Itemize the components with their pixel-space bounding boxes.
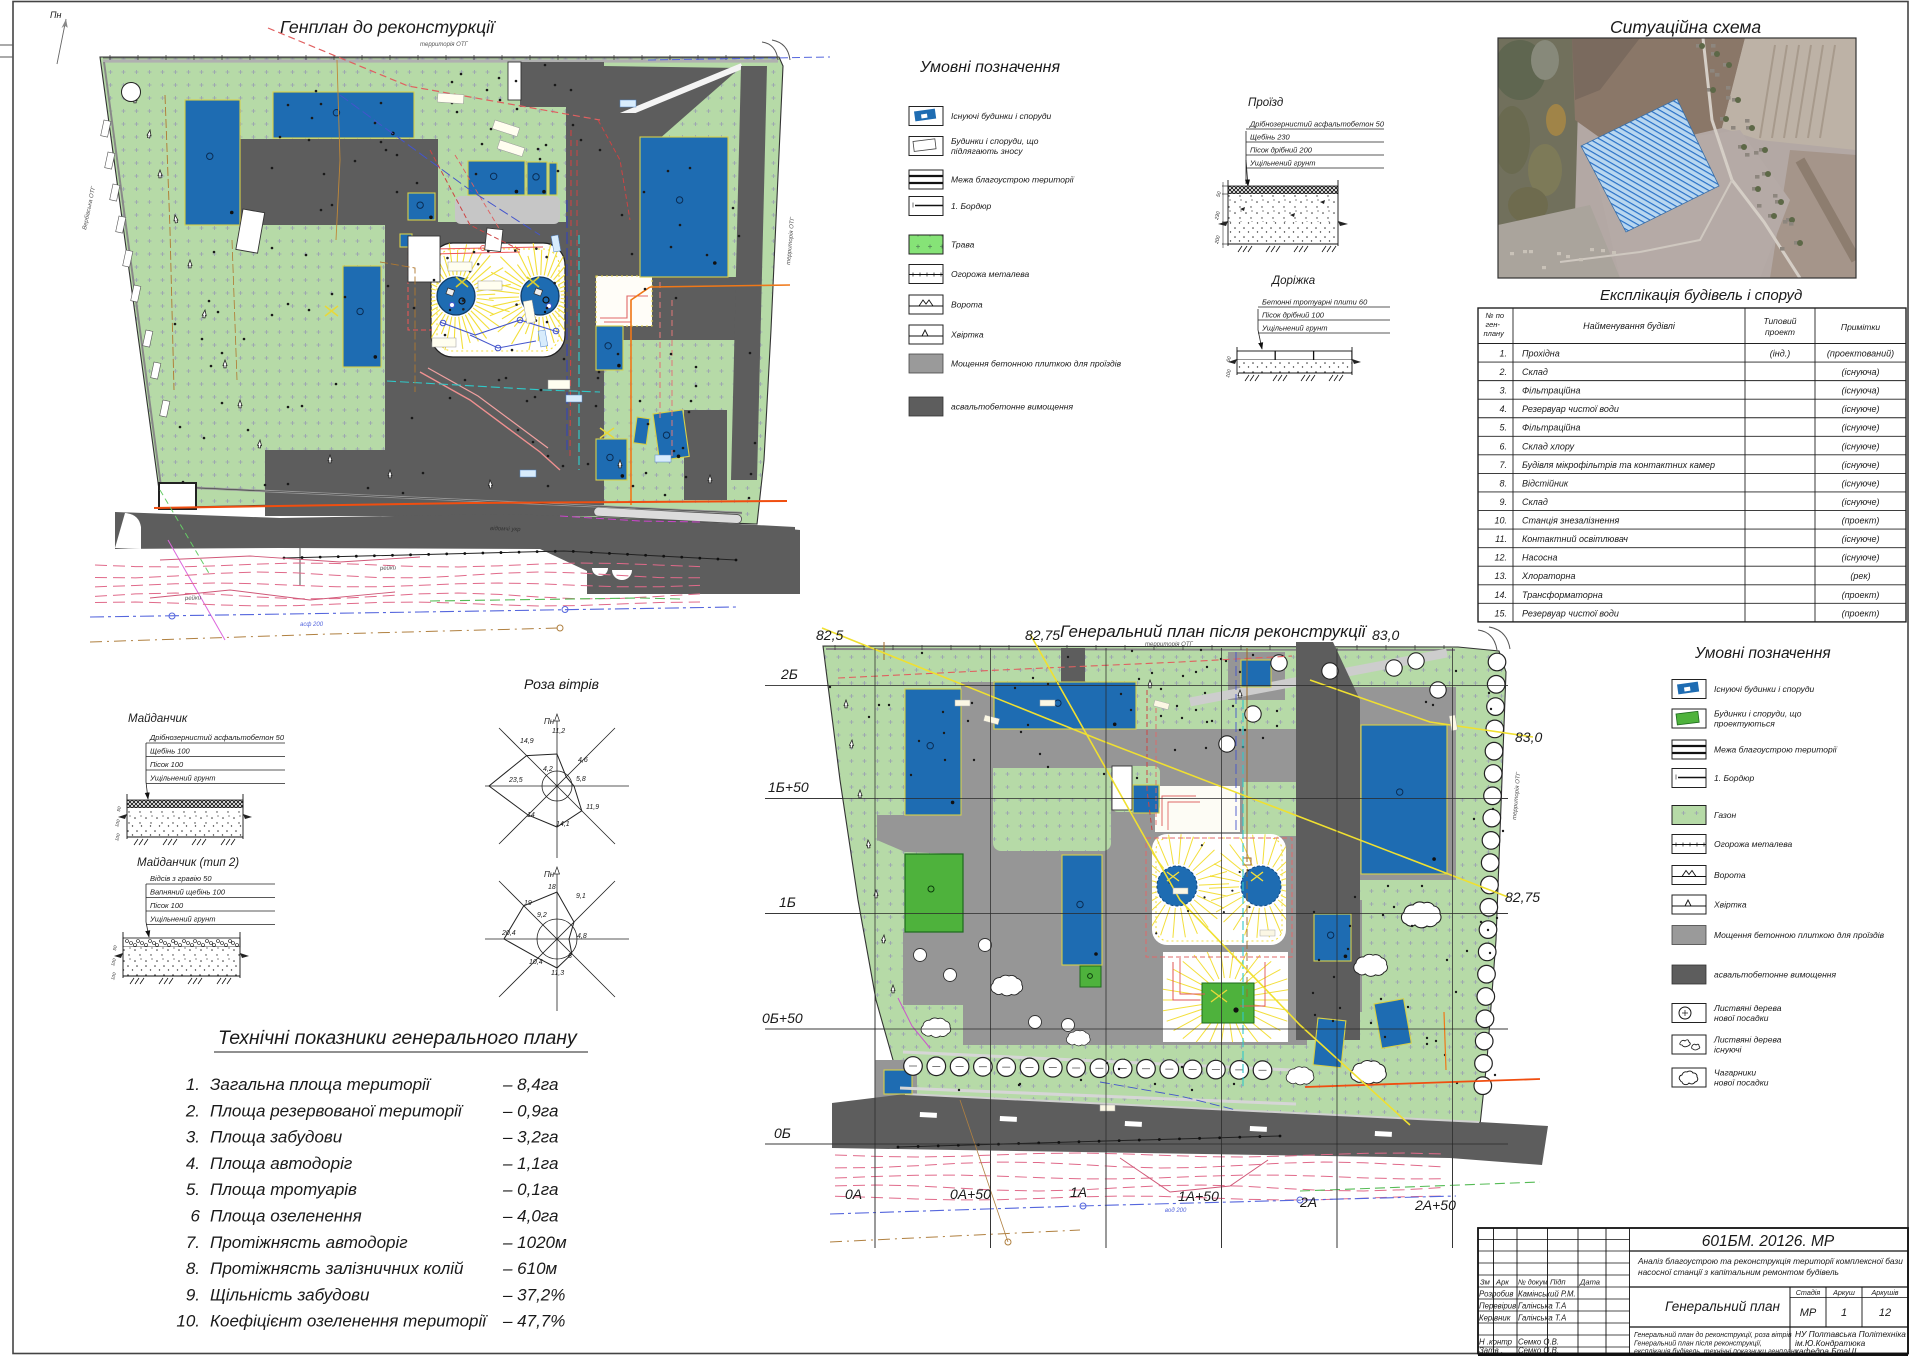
svg-text:20,4: 20,4: [501, 930, 516, 937]
svg-text:Протіжнясть залізничних колій: Протіжнясть залізничних колій: [210, 1259, 464, 1278]
svg-text:Огорожа металева: Огорожа металева: [951, 269, 1029, 279]
svg-text:1А: 1А: [1070, 1184, 1087, 1200]
svg-text:Підп: Підп: [1550, 1278, 1566, 1287]
svg-text:1. Бордюр: 1. Бордюр: [951, 201, 992, 211]
svg-text:– 47,7%: – 47,7%: [502, 1312, 565, 1331]
svg-text:Загальна площа території: Загальна площа території: [210, 1075, 432, 1094]
svg-text:Огорожа металева: Огорожа металева: [1714, 839, 1792, 849]
svg-text:Будинки і споруди, що: Будинки і споруди, що: [1714, 709, 1802, 719]
svg-text:№ докум: № докум: [1518, 1278, 1548, 1287]
svg-text:1Б+50: 1Б+50: [768, 779, 809, 795]
svg-text:Керівник: Керівник: [1479, 1314, 1511, 1323]
svg-text:Трава: Трава: [951, 240, 975, 250]
svg-text:(існуюче): (існуюче): [1842, 441, 1880, 451]
svg-text:3.: 3.: [186, 1128, 200, 1147]
svg-text:Існуючі будинки і споруди: Існуючі будинки і споруди: [951, 111, 1052, 121]
svg-text:асвальтобетонне вимощення: асвальтобетонне вимощення: [951, 402, 1073, 412]
svg-text:14.: 14.: [1494, 590, 1507, 600]
svg-text:территорія ОТГ: территорія ОТГ: [1145, 642, 1193, 648]
svg-text:3.: 3.: [1499, 386, 1507, 396]
svg-text:– 1020м: – 1020м: [502, 1233, 567, 1252]
svg-text:МР: МР: [1800, 1307, 1817, 1319]
svg-text:вод 200: вод 200: [1165, 1208, 1187, 1214]
svg-text:проектуються: проектуються: [1714, 719, 1775, 729]
svg-text:Експлікація будівель і споруд: Експлікація будівель і споруд: [1600, 287, 1802, 304]
svg-text:13.: 13.: [1494, 571, 1507, 581]
svg-text:Технічні показники генеральног: Технічні показники генерального плану: [218, 1027, 578, 1049]
svg-text:Хлораторна: Хлораторна: [1521, 571, 1575, 581]
svg-text:Галінська Т.А: Галінська Т.А: [1518, 1314, 1566, 1323]
svg-text:Генеральний план до реконструк: Генеральний план до реконструкції, роза …: [1634, 1331, 1792, 1339]
svg-text:Пісок 100: Пісок 100: [150, 901, 184, 910]
svg-text:– 0,9га: – 0,9га: [502, 1101, 558, 1120]
svg-text:Відстійник: Відстійник: [1522, 478, 1569, 488]
svg-text:Пісок дрібний 100: Пісок дрібний 100: [1262, 311, 1325, 320]
svg-text:Мощення бетонною плиткою для п: Мощення бетонною плиткою для проїздів: [1714, 930, 1885, 940]
svg-text:існуючі: існуючі: [1714, 1045, 1742, 1055]
svg-text:2.: 2.: [185, 1101, 200, 1120]
svg-text:8.: 8.: [186, 1259, 200, 1278]
svg-text:Листвяні дерева: Листвяні дерева: [1713, 1035, 1782, 1045]
svg-text:Листвяні дерева: Листвяні дерева: [1713, 1003, 1782, 1013]
svg-text:10,4: 10,4: [529, 959, 543, 966]
svg-text:Щебінь 100: Щебінь 100: [150, 747, 191, 756]
svg-text:Резервуар чистої води: Резервуар чистої води: [1522, 608, 1619, 618]
svg-text:рейки: рейки: [379, 564, 397, 572]
svg-text:Ущільнений грунт: Ущільнений грунт: [1249, 159, 1316, 168]
svg-text:Аркушів: Аркушів: [1870, 1288, 1898, 1297]
svg-text:Щільність забудови: Щільність забудови: [210, 1285, 370, 1304]
svg-text:82,75: 82,75: [1025, 627, 1060, 643]
svg-text:Фільтраційна: Фільтраційна: [1522, 386, 1580, 396]
svg-text:2.: 2.: [1498, 367, 1507, 377]
svg-text:проект: проект: [1765, 327, 1795, 337]
svg-text:1: 1: [1841, 1307, 1847, 1319]
svg-text:Резервуар чистої води: Резервуар чистої води: [1522, 404, 1619, 414]
svg-text:Перевірив: Перевірив: [1479, 1302, 1516, 1311]
svg-text:19: 19: [524, 900, 532, 907]
svg-text:2А+50: 2А+50: [1414, 1197, 1456, 1213]
svg-text:1А+50: 1А+50: [1178, 1188, 1219, 1204]
svg-text:нової посадки: нової посадки: [1714, 1013, 1769, 1023]
svg-text:Дрібнозернистий асфальтобетон: Дрібнозернистий асфальтобетон 50: [149, 733, 285, 742]
svg-text:відомчі укр: відомчі укр: [490, 526, 521, 533]
svg-text:5.: 5.: [1499, 423, 1507, 433]
svg-text:Ущільнений грунт: Ущільнений грунт: [1261, 324, 1328, 333]
svg-text:Станція знезалізнення: Станція знезалізнення: [1522, 516, 1619, 526]
svg-text:(існуюче): (існуюче): [1842, 534, 1880, 544]
svg-text:10.: 10.: [176, 1312, 200, 1331]
svg-text:2А: 2А: [1299, 1194, 1317, 1210]
svg-text:Розробив: Розробив: [1479, 1290, 1513, 1299]
svg-text:Будівля мікрофільтрів та конта: Будівля мікрофільтрів та контактних каме…: [1522, 460, 1715, 470]
svg-text:601БМ. 20126. МР: 601БМ. 20126. МР: [1702, 1233, 1835, 1250]
svg-text:Ворота: Ворота: [951, 300, 983, 310]
svg-text:(проект): (проект): [1842, 590, 1880, 600]
svg-text:9,1: 9,1: [576, 893, 586, 900]
svg-text:– 37,2%: – 37,2%: [502, 1285, 565, 1304]
svg-text:Доріжка: Доріжка: [1270, 275, 1315, 287]
svg-text:10.: 10.: [1494, 516, 1507, 526]
svg-text:Чагарники: Чагарники: [1714, 1068, 1756, 1078]
svg-text:Ворота: Ворота: [1714, 870, 1746, 880]
svg-text:4,6: 4,6: [578, 757, 588, 764]
svg-text:Склад: Склад: [1522, 367, 1548, 377]
svg-text:Умовні позначення: Умовні позначення: [1694, 645, 1831, 662]
svg-text:Роза вітрів: Роза вітрів: [524, 676, 599, 692]
svg-text:9,2: 9,2: [537, 912, 547, 919]
svg-text:рейки: рейки: [184, 594, 202, 602]
svg-text:14,1: 14,1: [556, 821, 570, 828]
svg-text:6: 6: [191, 1207, 201, 1226]
svg-text:1.: 1.: [186, 1075, 200, 1094]
svg-text:4,8: 4,8: [577, 933, 587, 940]
svg-text:Генплан до реконстуркції: Генплан до реконстуркції: [280, 17, 496, 37]
svg-text:83,0: 83,0: [1372, 627, 1399, 643]
svg-text:асф 200: асф 200: [300, 622, 324, 628]
svg-text:Ситуаційна схема: Ситуаційна схема: [1610, 17, 1761, 37]
svg-text:Пісок 100: Пісок 100: [150, 760, 184, 769]
svg-text:(існуюче): (існуюче): [1842, 478, 1880, 488]
svg-text:Вапняний щебінь 100: Вапняний щебінь 100: [150, 888, 226, 897]
svg-text:8.: 8.: [1499, 478, 1507, 488]
svg-text:(існуюче): (існуюче): [1842, 497, 1880, 507]
svg-text:(інд.): (інд.): [1770, 349, 1790, 359]
svg-text:территорія ОТГ: территорія ОТГ: [420, 42, 468, 48]
svg-text:– 1,1га: – 1,1га: [502, 1154, 558, 1173]
svg-text:Генеральний план після реконст: Генеральний план після реконструкції: [1060, 622, 1368, 641]
svg-text:4.: 4.: [186, 1154, 200, 1173]
svg-text:Ущільнений грунт: Ущільнений грунт: [149, 915, 216, 924]
svg-text:ген-: ген-: [1486, 320, 1501, 329]
svg-text:Дрібнозернистий асфальтобетон: Дрібнозернистий асфальтобетон 50: [1249, 120, 1385, 129]
svg-text:Бетонні тротуарні плити 60: Бетонні тротуарні плити 60: [1262, 298, 1368, 307]
svg-text:Площа озеленення: Площа озеленення: [210, 1207, 362, 1226]
svg-text:асвальтобетонне вимощення: асвальтобетонне вимощення: [1714, 970, 1836, 980]
svg-text:Контактний освітлювач: Контактний освітлювач: [1522, 534, 1628, 544]
svg-text:0Б+50: 0Б+50: [762, 1010, 803, 1026]
svg-text:Межа благоустрою території: Межа благоустрою території: [1714, 745, 1838, 755]
svg-text:плану: плану: [1484, 329, 1506, 338]
svg-text:Аркуш: Аркуш: [1832, 1288, 1855, 1297]
svg-text:8: 8: [568, 953, 572, 960]
svg-text:Будинки і споруди, що: Будинки і споруди, що: [951, 136, 1039, 146]
svg-text:Стадія: Стадія: [1796, 1288, 1821, 1297]
svg-text:11,3: 11,3: [551, 970, 564, 977]
svg-text:Прохідна: Прохідна: [1522, 349, 1560, 359]
svg-text:5.: 5.: [186, 1180, 200, 1199]
svg-text:Протіжнясть автодоріг: Протіжнясть автодоріг: [210, 1233, 408, 1252]
svg-text:Арк: Арк: [1495, 1278, 1509, 1287]
svg-text:Хвіртка: Хвіртка: [1713, 900, 1747, 910]
svg-text:(існуюче): (існуюче): [1842, 423, 1880, 433]
svg-text:Зм: Зм: [1480, 1278, 1491, 1287]
svg-text:23,5: 23,5: [508, 777, 523, 784]
svg-text:4.: 4.: [1499, 404, 1507, 414]
svg-text:Проїзд: Проїзд: [1248, 97, 1283, 109]
svg-text:(існуюче): (існуюче): [1842, 553, 1880, 563]
svg-text:– 0,1га: – 0,1га: [502, 1180, 558, 1199]
svg-text:Майданчик: Майданчик: [128, 713, 188, 725]
svg-text:12.: 12.: [1494, 553, 1507, 563]
svg-text:14,9: 14,9: [520, 738, 534, 745]
svg-text:0Б: 0Б: [774, 1125, 791, 1141]
svg-text:(рек): (рек): [1850, 571, 1870, 581]
svg-text:6.: 6.: [1499, 441, 1507, 451]
svg-text:– 8,4га: – 8,4га: [502, 1075, 558, 1094]
svg-text:Існуючі будинки і споруди: Існуючі будинки і споруди: [1714, 684, 1815, 694]
svg-text:Пн: Пн: [544, 870, 555, 879]
svg-text:Газон: Газон: [1714, 810, 1736, 820]
svg-text:Аналіз благоустрою та реконстр: Аналіз благоустрою та реконструкція тери…: [1637, 1256, 1903, 1266]
svg-text:Найменування будівлі: Найменування будівлі: [1583, 321, 1676, 331]
svg-text:Примітки: Примітки: [1841, 322, 1880, 332]
svg-text:№ по: № по: [1486, 311, 1505, 320]
svg-text:нової посадки: нової посадки: [1714, 1078, 1769, 1088]
svg-text:82,5: 82,5: [816, 627, 843, 643]
svg-text:Трансформаторна: Трансформаторна: [1522, 590, 1603, 600]
svg-text:Пісок дрібний 200: Пісок дрібний 200: [1250, 146, 1313, 155]
svg-text:11,2: 11,2: [552, 728, 565, 735]
svg-text:Умовні позначення: Умовні позначення: [919, 59, 1060, 76]
svg-text:5,8: 5,8: [576, 776, 586, 783]
svg-text:Хвіртка: Хвіртка: [950, 330, 984, 340]
svg-text:7.: 7.: [186, 1233, 200, 1252]
svg-text:Щебінь 230: Щебінь 230: [1250, 133, 1291, 142]
svg-text:(існуюче): (існуюче): [1842, 460, 1880, 470]
svg-text:83,0: 83,0: [1515, 729, 1542, 745]
svg-text:(існуюча): (існуюча): [1842, 367, 1880, 377]
svg-text:Відсів з гравію 50: Відсів з гравію 50: [150, 874, 212, 883]
svg-text:Пн: Пн: [544, 717, 555, 726]
svg-text:Площа тротуарів: Площа тротуарів: [210, 1180, 357, 1199]
svg-text:15.: 15.: [1494, 608, 1507, 618]
svg-text:Коефіцієнт озеленення територі: Коефіцієнт озеленення території: [210, 1312, 488, 1331]
svg-text:1Б: 1Б: [779, 894, 796, 910]
svg-text:Камінський Р.М.: Камінський Р.М.: [1518, 1290, 1576, 1299]
svg-text:11,9: 11,9: [586, 804, 599, 811]
svg-text:0А+50: 0А+50: [950, 1186, 991, 1202]
svg-text:Мощення бетонною плиткою для п: Мощення бетонною плиткою для проїздів: [951, 359, 1122, 369]
svg-text:Галінська Т.А: Галінська Т.А: [1518, 1302, 1566, 1311]
svg-text:– 4,0га: – 4,0га: [502, 1207, 558, 1226]
svg-text:Пн: Пн: [50, 10, 62, 20]
svg-text:Насосна: Насосна: [1522, 553, 1557, 563]
svg-text:(існуюче): (існуюче): [1842, 404, 1880, 414]
svg-text:Склад: Склад: [1522, 497, 1548, 507]
svg-text:Площа резервованої території: Площа резервованої території: [210, 1101, 464, 1120]
svg-text:(існуюча): (існуюча): [1842, 386, 1880, 396]
svg-text:– 3,2га: – 3,2га: [502, 1128, 558, 1147]
svg-text:насосної станції з капітальн: насосної станції з капітальним ремонтом …: [1638, 1267, 1839, 1277]
svg-text:Площа забудови: Площа забудови: [210, 1128, 343, 1147]
svg-text:18: 18: [548, 884, 556, 891]
svg-text:1.: 1.: [1499, 349, 1507, 359]
svg-text:4,2: 4,2: [543, 766, 553, 773]
svg-text:7.: 7.: [1499, 460, 1507, 470]
svg-text:1. Бордюр: 1. Бордюр: [1714, 773, 1755, 783]
svg-text:Склад хлору: Склад хлору: [1522, 441, 1575, 451]
svg-text:(проектований): (проектований): [1827, 349, 1894, 359]
svg-text:Фільтраційна: Фільтраційна: [1522, 423, 1580, 433]
svg-text:(проект): (проект): [1842, 516, 1880, 526]
svg-text:9.: 9.: [186, 1285, 200, 1304]
svg-text:9.: 9.: [1499, 497, 1507, 507]
svg-text:82,75: 82,75: [1505, 889, 1540, 905]
svg-text:14: 14: [527, 812, 535, 819]
svg-text:Генеральний план після реконст: Генеральний план після реконструкції,: [1634, 1340, 1762, 1348]
svg-text:0А: 0А: [845, 1186, 862, 1202]
svg-text:Майданчик (тип 2): Майданчик (тип 2): [137, 857, 239, 869]
svg-text:Типовий: Типовий: [1764, 316, 1797, 326]
svg-text:11.: 11.: [1495, 534, 1507, 544]
svg-text:Площа автодоріг: Площа автодоріг: [210, 1154, 352, 1173]
svg-text:– 610м: – 610м: [502, 1259, 558, 1278]
svg-text:Межа благоустрою території: Межа благоустрою території: [951, 175, 1075, 185]
svg-text:(проект): (проект): [1842, 608, 1880, 618]
svg-text:2Б: 2Б: [780, 666, 798, 682]
svg-text:12: 12: [1879, 1307, 1891, 1319]
svg-text:Ущільнений грунт: Ущільнений грунт: [149, 774, 216, 783]
svg-text:Генеральний план: Генеральний план: [1665, 1299, 1781, 1314]
svg-text:Дата: Дата: [1579, 1278, 1600, 1287]
svg-text:підлягають зносу: підлягають зносу: [951, 146, 1023, 156]
